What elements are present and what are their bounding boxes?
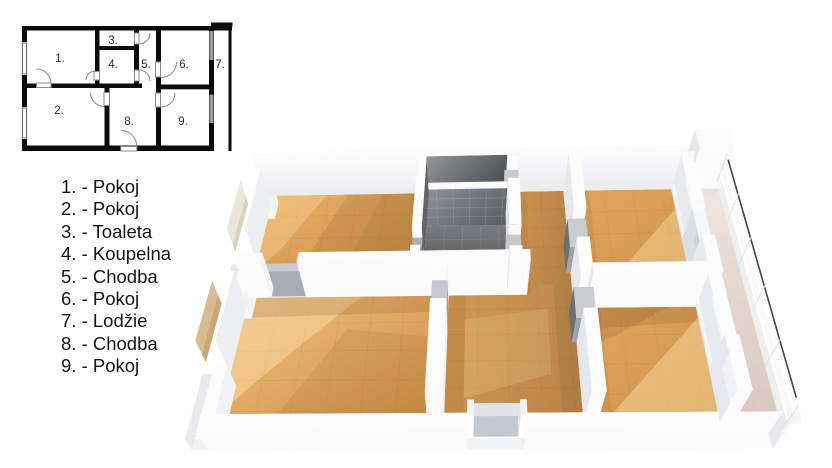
svg-text:6.: 6. (179, 59, 189, 71)
svg-text:3.: 3. (108, 35, 118, 47)
svg-text:1.: 1. (55, 53, 65, 65)
svg-text:5.: 5. (141, 59, 151, 71)
svg-text:2.: 2. (54, 105, 64, 117)
svg-text:8.: 8. (124, 116, 134, 128)
svg-text:7.: 7. (215, 59, 225, 71)
svg-text:4.: 4. (108, 59, 118, 71)
svg-text:9.: 9. (178, 116, 188, 128)
